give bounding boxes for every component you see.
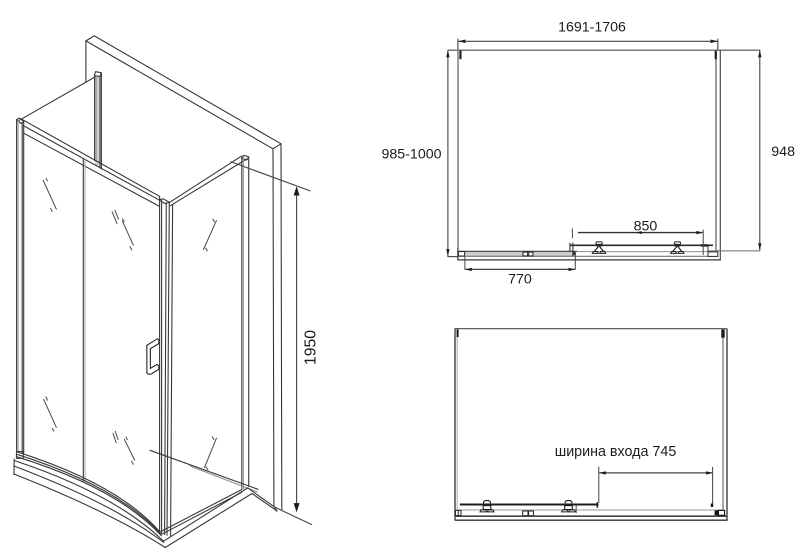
svg-text:1950: 1950 <box>303 330 320 365</box>
svg-text:850: 850 <box>634 219 658 235</box>
svg-text:948: 948 <box>771 144 795 160</box>
svg-text:985-1000: 985-1000 <box>382 147 442 163</box>
svg-text:ширина входа 745: ширина входа 745 <box>555 444 677 460</box>
svg-text:1691-1706: 1691-1706 <box>558 20 626 36</box>
svg-text:770: 770 <box>508 272 532 288</box>
